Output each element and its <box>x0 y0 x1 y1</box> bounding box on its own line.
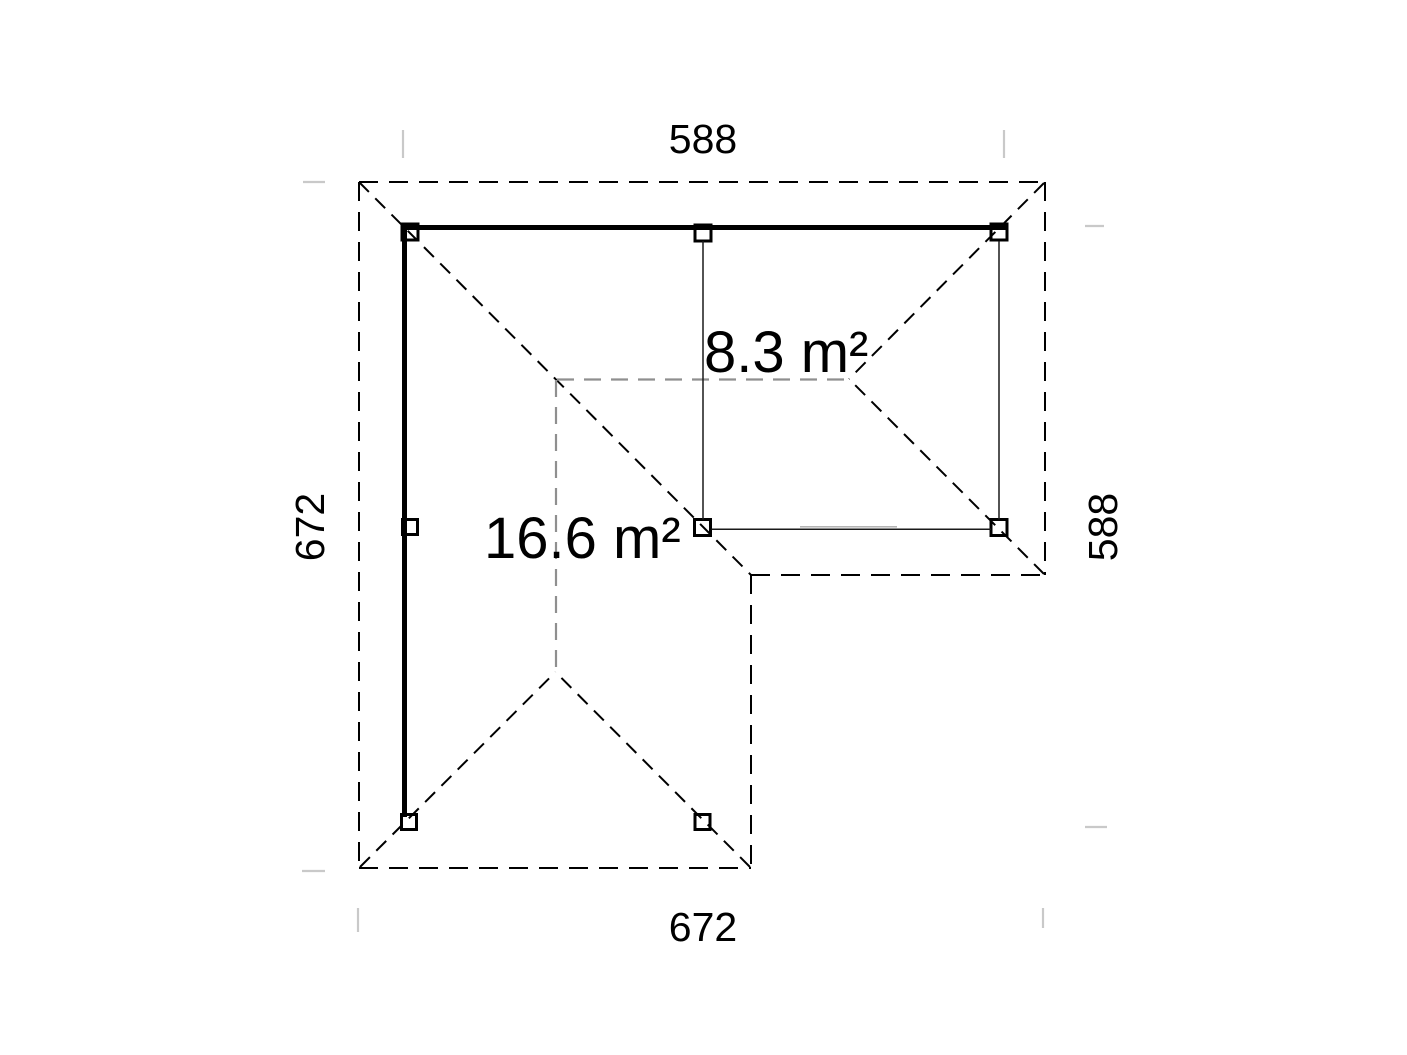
hip-southwest <box>360 672 556 867</box>
dimension-bottom: 672 <box>669 904 737 950</box>
dimension-left: 672 <box>287 493 333 561</box>
hip-northeast <box>849 183 1044 379</box>
dimension-right: 588 <box>1080 493 1126 561</box>
post-bottom-middle <box>695 815 710 830</box>
hip-southeast-annex <box>849 379 1044 574</box>
area-labels: 16.6 m² 8.3 m² <box>484 320 868 571</box>
infill-beams <box>703 241 999 529</box>
floor-plan-drawing: 588 672 672 588 16.6 m² 8.3 m² <box>0 0 1407 1055</box>
area-label-main: 16.6 m² <box>484 506 681 571</box>
hip-southeast-main <box>556 672 751 867</box>
area-label-annex: 8.3 m² <box>704 320 868 385</box>
floor-plan-page: 588 672 672 588 16.6 m² 8.3 m² <box>0 0 1407 1055</box>
dimension-top: 588 <box>669 116 737 162</box>
post-right-bottom <box>991 520 1007 536</box>
roof-hip-lines <box>359 182 1044 867</box>
